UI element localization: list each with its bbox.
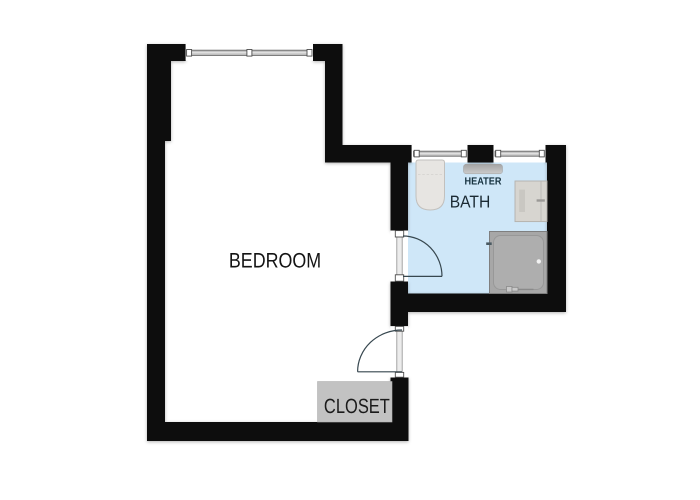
svg-text:HEATER: HEATER	[465, 177, 502, 188]
svg-text:CLOSET: CLOSET	[324, 395, 390, 418]
svg-text:BEDROOM: BEDROOM	[229, 249, 321, 272]
svg-text:BATH: BATH	[450, 192, 491, 212]
